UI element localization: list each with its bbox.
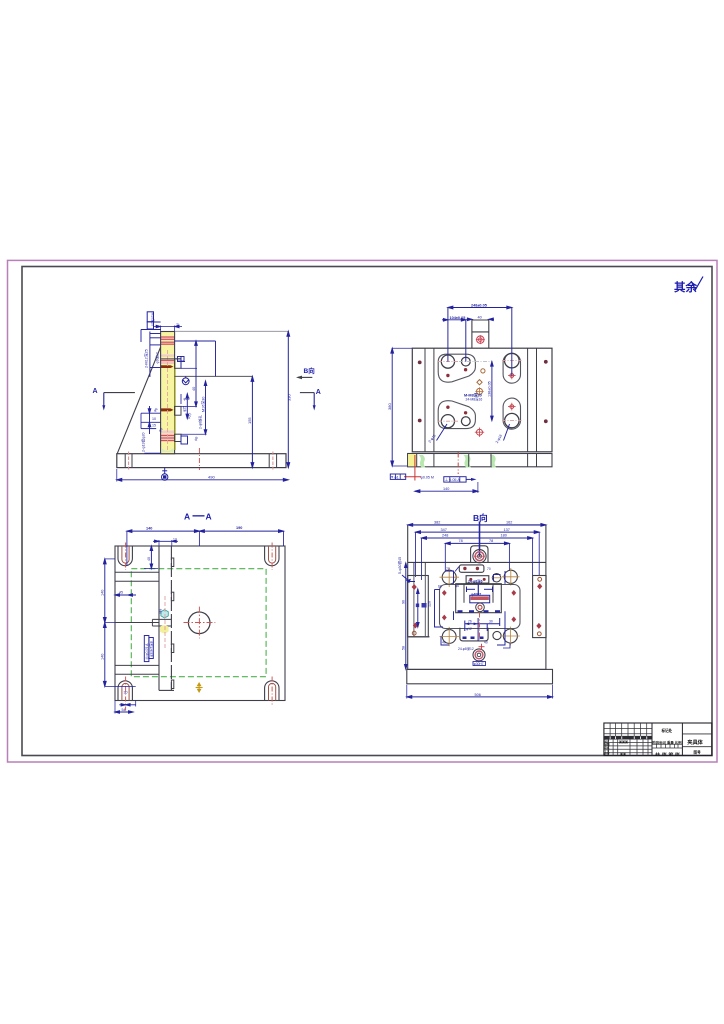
- svg-text:φ9深12: φ9深12: [155, 352, 160, 363]
- svg-text:60: 60: [438, 585, 442, 589]
- svg-text:45: 45: [119, 590, 123, 594]
- svg-text:标记处: 标记处: [661, 727, 673, 733]
- svg-text:24-φ8深6: 24-φ8深6: [468, 579, 483, 584]
- svg-text:190: 190: [236, 526, 242, 530]
- svg-text:⊥ 0.05 A: ⊥ 0.05 A: [445, 478, 461, 482]
- svg-text:M8: M8: [159, 609, 163, 614]
- svg-text:40: 40: [192, 387, 196, 391]
- svg-text:330: 330: [287, 394, 292, 401]
- svg-text:380: 380: [387, 403, 392, 410]
- svg-text:140: 140: [101, 590, 105, 596]
- svg-text:φ0.05 M: φ0.05 M: [421, 475, 434, 479]
- svg-text:φ40H7: φ40H7: [471, 592, 481, 596]
- svg-text:图号: 图号: [694, 750, 702, 755]
- svg-text:162: 162: [506, 521, 512, 525]
- svg-text:◎ φ0.05 A: ◎ φ0.05 A: [145, 643, 149, 660]
- svg-text:120: 120: [428, 601, 432, 607]
- svg-text:490: 490: [208, 474, 215, 479]
- svg-text:制图: 制图: [604, 743, 610, 747]
- svg-text:M10深20: M10深20: [151, 313, 156, 327]
- svg-text:506: 506: [475, 693, 481, 697]
- svg-text:248±0.05: 248±0.05: [471, 304, 487, 308]
- svg-text:10: 10: [152, 417, 156, 421]
- svg-text:φ12: φ12: [466, 627, 472, 631]
- svg-text:B向: B向: [473, 513, 488, 523]
- svg-text:78: 78: [459, 539, 463, 543]
- svg-text:审核: 审核: [604, 746, 610, 750]
- svg-text:40: 40: [442, 641, 446, 645]
- svg-text:15: 15: [152, 424, 156, 428]
- svg-text:248: 248: [442, 534, 448, 538]
- svg-text:54: 54: [122, 708, 126, 712]
- svg-text:9: 9: [177, 323, 179, 327]
- svg-text:A: A: [206, 512, 212, 522]
- svg-text:40: 40: [147, 557, 151, 561]
- svg-text:2-φ6锥孔: 2-φ6锥孔: [198, 415, 203, 429]
- svg-text:φ30H7深8: φ30H7深8: [149, 641, 154, 657]
- svg-text:24-φ8深12: 24-φ8深12: [458, 646, 474, 651]
- svg-text:155: 155: [247, 417, 252, 424]
- svg-text:140: 140: [443, 487, 449, 491]
- svg-text:40: 40: [478, 315, 482, 319]
- svg-text:24-M8深16: 24-M8深16: [466, 396, 483, 401]
- svg-text:138±0.05: 138±0.05: [488, 381, 492, 397]
- svg-text:设计: 设计: [604, 739, 610, 743]
- svg-text:⌖ φ1: ⌖ φ1: [391, 476, 399, 480]
- svg-text:180: 180: [501, 534, 507, 538]
- svg-text:夹具体: 夹具体: [687, 738, 703, 746]
- svg-text:A: A: [184, 512, 190, 522]
- svg-text:共 张 第 张: 共 张 第 张: [655, 751, 682, 756]
- svg-text:30: 30: [124, 691, 128, 695]
- svg-text:φ6: φ6: [455, 584, 459, 588]
- svg-text:70: 70: [446, 567, 450, 571]
- svg-text:2-M12深25: 2-M12深25: [144, 349, 149, 368]
- svg-text:40: 40: [484, 641, 488, 645]
- svg-text:批准: 批准: [604, 752, 610, 756]
- svg-text:φ25: φ25: [183, 406, 187, 412]
- svg-text:104±0.05: 104±0.05: [450, 316, 466, 320]
- svg-text:96: 96: [402, 600, 406, 604]
- svg-text:A: A: [316, 389, 321, 396]
- svg-text:140: 140: [146, 527, 152, 531]
- svg-text:70: 70: [487, 567, 491, 571]
- svg-text:58: 58: [402, 646, 406, 650]
- svg-text:140: 140: [101, 654, 105, 660]
- svg-text:382: 382: [434, 521, 440, 525]
- svg-text:2-φ13锪φ20: 2-φ13锪φ20: [141, 433, 146, 452]
- svg-text:12: 12: [173, 537, 177, 541]
- svg-text:某某某: 某某某: [619, 739, 628, 744]
- svg-text:137: 137: [504, 528, 510, 532]
- svg-text:M16深30: M16深30: [200, 397, 205, 412]
- svg-text:78: 78: [489, 539, 493, 543]
- svg-text:5-φ30锪45: 5-φ30锪45: [397, 557, 402, 574]
- svg-text:某某: 某某: [620, 751, 626, 756]
- svg-text:B向: B向: [304, 366, 316, 375]
- svg-text:76: 76: [468, 620, 472, 624]
- svg-text:347: 347: [441, 528, 447, 532]
- svg-text:φ30H7: φ30H7: [474, 662, 484, 666]
- svg-text:A: A: [93, 388, 98, 395]
- svg-text:30: 30: [489, 620, 493, 624]
- svg-text:阶段标记 重量 比例: 阶段标记 重量 比例: [653, 740, 682, 745]
